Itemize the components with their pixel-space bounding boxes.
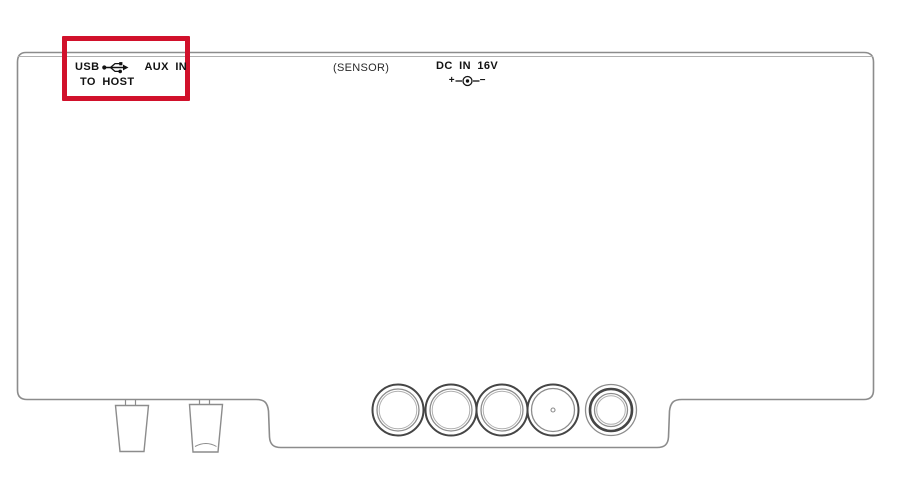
jack-knob-1: [373, 385, 424, 436]
foot-left: [116, 400, 149, 452]
to-host-label: TO HOST: [80, 77, 135, 88]
aux-in-label: AUX IN: [144, 62, 187, 73]
jack-knob-4: [528, 385, 579, 436]
usb-label: USB: [75, 62, 99, 73]
polarity-minus-label: −: [480, 76, 486, 86]
sensor-label: (SENSOR): [333, 63, 389, 74]
jack-knob-5: [586, 385, 637, 436]
jack-knob-3: [477, 385, 528, 436]
dc-polarity-center-positive-icon: [455, 75, 480, 87]
dc-in-label: DC IN 16V: [436, 61, 498, 72]
jack-knob-2: [426, 385, 477, 436]
rear-panel-diagram: USB AUX IN TO HOST (SENSOR) DC IN 16V + …: [0, 0, 900, 480]
usb-trident-icon: [102, 61, 129, 74]
dc-in-label-block: DC IN 16V + −: [436, 61, 498, 87]
dc-polarity-row: + −: [449, 75, 486, 87]
usb-aux-label-row: USB AUX IN: [75, 61, 187, 74]
panel-outline: [18, 53, 874, 448]
foot-right: [190, 400, 223, 452]
